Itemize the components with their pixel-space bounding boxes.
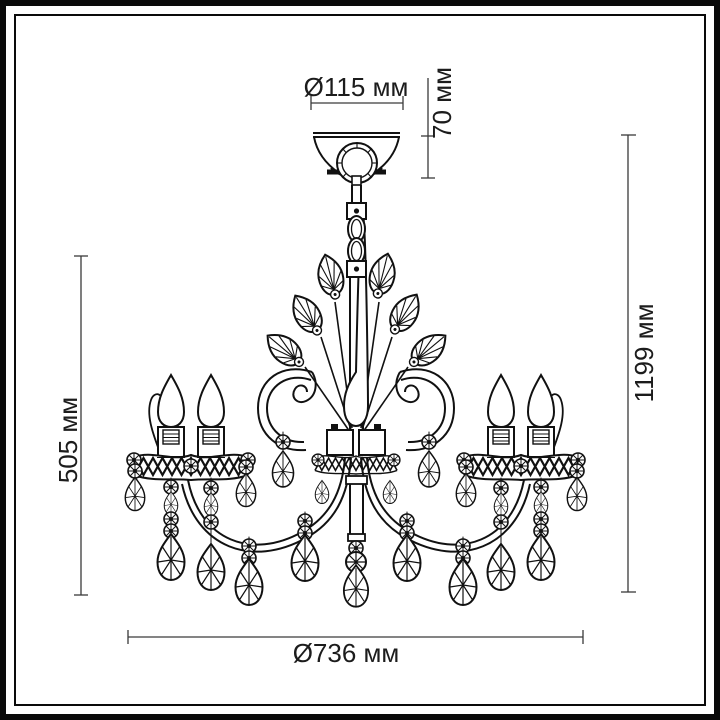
center-tray: [312, 454, 400, 474]
left-tray: [127, 453, 255, 480]
dim-label-overall-height: 1199 мм: [629, 304, 659, 403]
dim-label-canopy-diameter: Ø115 мм: [304, 72, 409, 102]
dim-label-canopy-height: 70 мм: [427, 67, 457, 139]
dim-overall-height: 1199 мм: [621, 135, 659, 592]
right-tray: [457, 453, 585, 480]
dim-label-overall-diameter: Ø736 мм: [293, 638, 400, 668]
center-finial: [344, 476, 368, 607]
chandelier-technical-drawing: Ø115 мм 70 мм 1199 мм 505 мм: [0, 0, 720, 720]
dim-label-body-height: 505 мм: [53, 397, 83, 483]
ceiling-canopy: [313, 133, 400, 185]
dim-canopy-diameter: Ø115 мм: [304, 72, 409, 110]
chandelier: [125, 133, 586, 607]
chain: [347, 185, 366, 277]
dim-overall-diameter: Ø736 мм: [128, 630, 583, 668]
dim-canopy-height: 70 мм: [421, 67, 457, 178]
diagram-page: Ø115 мм 70 мм 1199 мм 505 мм: [0, 0, 720, 720]
dim-body-height: 505 мм: [53, 256, 88, 595]
